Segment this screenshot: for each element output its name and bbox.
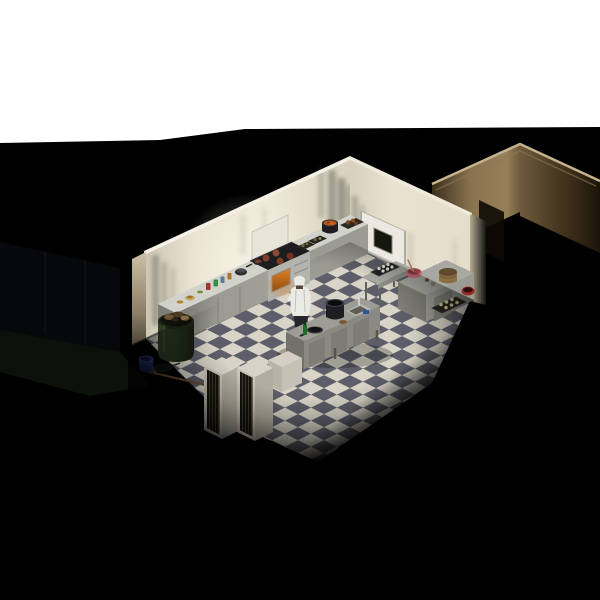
scene [0,0,600,600]
game-viewport [0,0,600,600]
white-exposure-band [0,0,600,143]
basket [439,268,457,284]
stew-pot [322,220,338,234]
left-exterior-wall [132,252,146,346]
red-pot [462,287,475,296]
